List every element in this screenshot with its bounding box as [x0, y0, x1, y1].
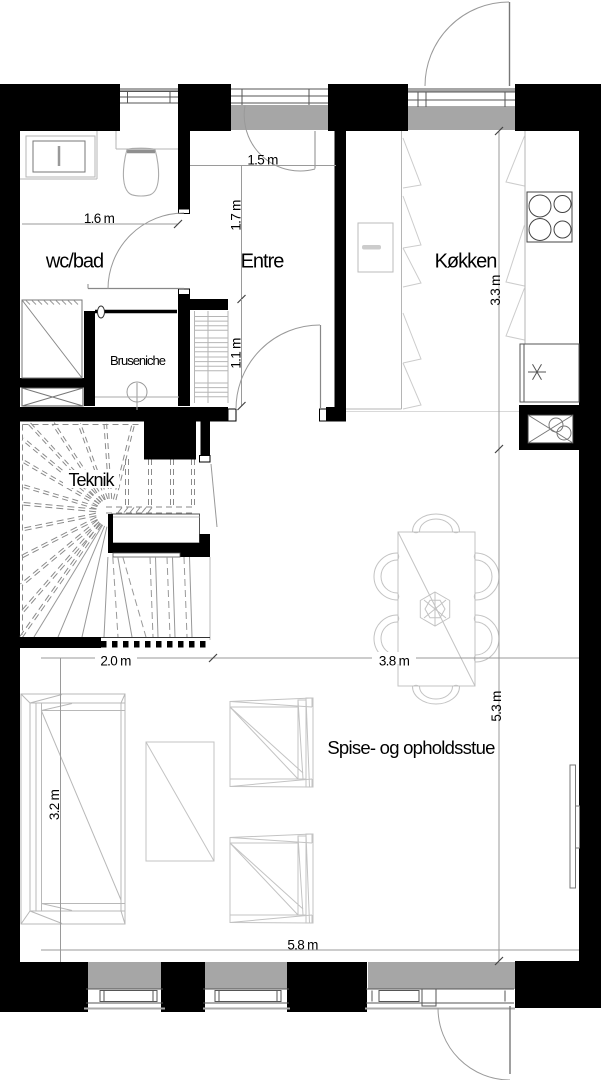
svg-text:Teknik: Teknik [68, 470, 115, 490]
svg-text:Spise- og opholdsstue: Spise- og opholdsstue [327, 737, 495, 758]
svg-text:3.2 m: 3.2 m [47, 789, 62, 820]
svg-text:1.6 m: 1.6 m [84, 211, 115, 226]
svg-text:5.8 m: 5.8 m [287, 938, 318, 953]
svg-text:2.0 m: 2.0 m [100, 654, 131, 669]
svg-text:Entre: Entre [241, 251, 285, 273]
svg-text:3.3 m: 3.3 m [488, 275, 503, 306]
svg-text:Køkken: Køkken [435, 251, 497, 273]
svg-text:Bruseniche: Bruseniche [110, 353, 166, 368]
svg-text:1.1 m: 1.1 m [229, 338, 244, 369]
svg-text:wc/bad: wc/bad [45, 251, 103, 273]
svg-text:1.7 m: 1.7 m [229, 200, 244, 231]
svg-text:1.5 m: 1.5 m [247, 153, 278, 168]
svg-text:5.3 m: 5.3 m [489, 691, 504, 722]
svg-text:3.8 m: 3.8 m [379, 654, 410, 669]
